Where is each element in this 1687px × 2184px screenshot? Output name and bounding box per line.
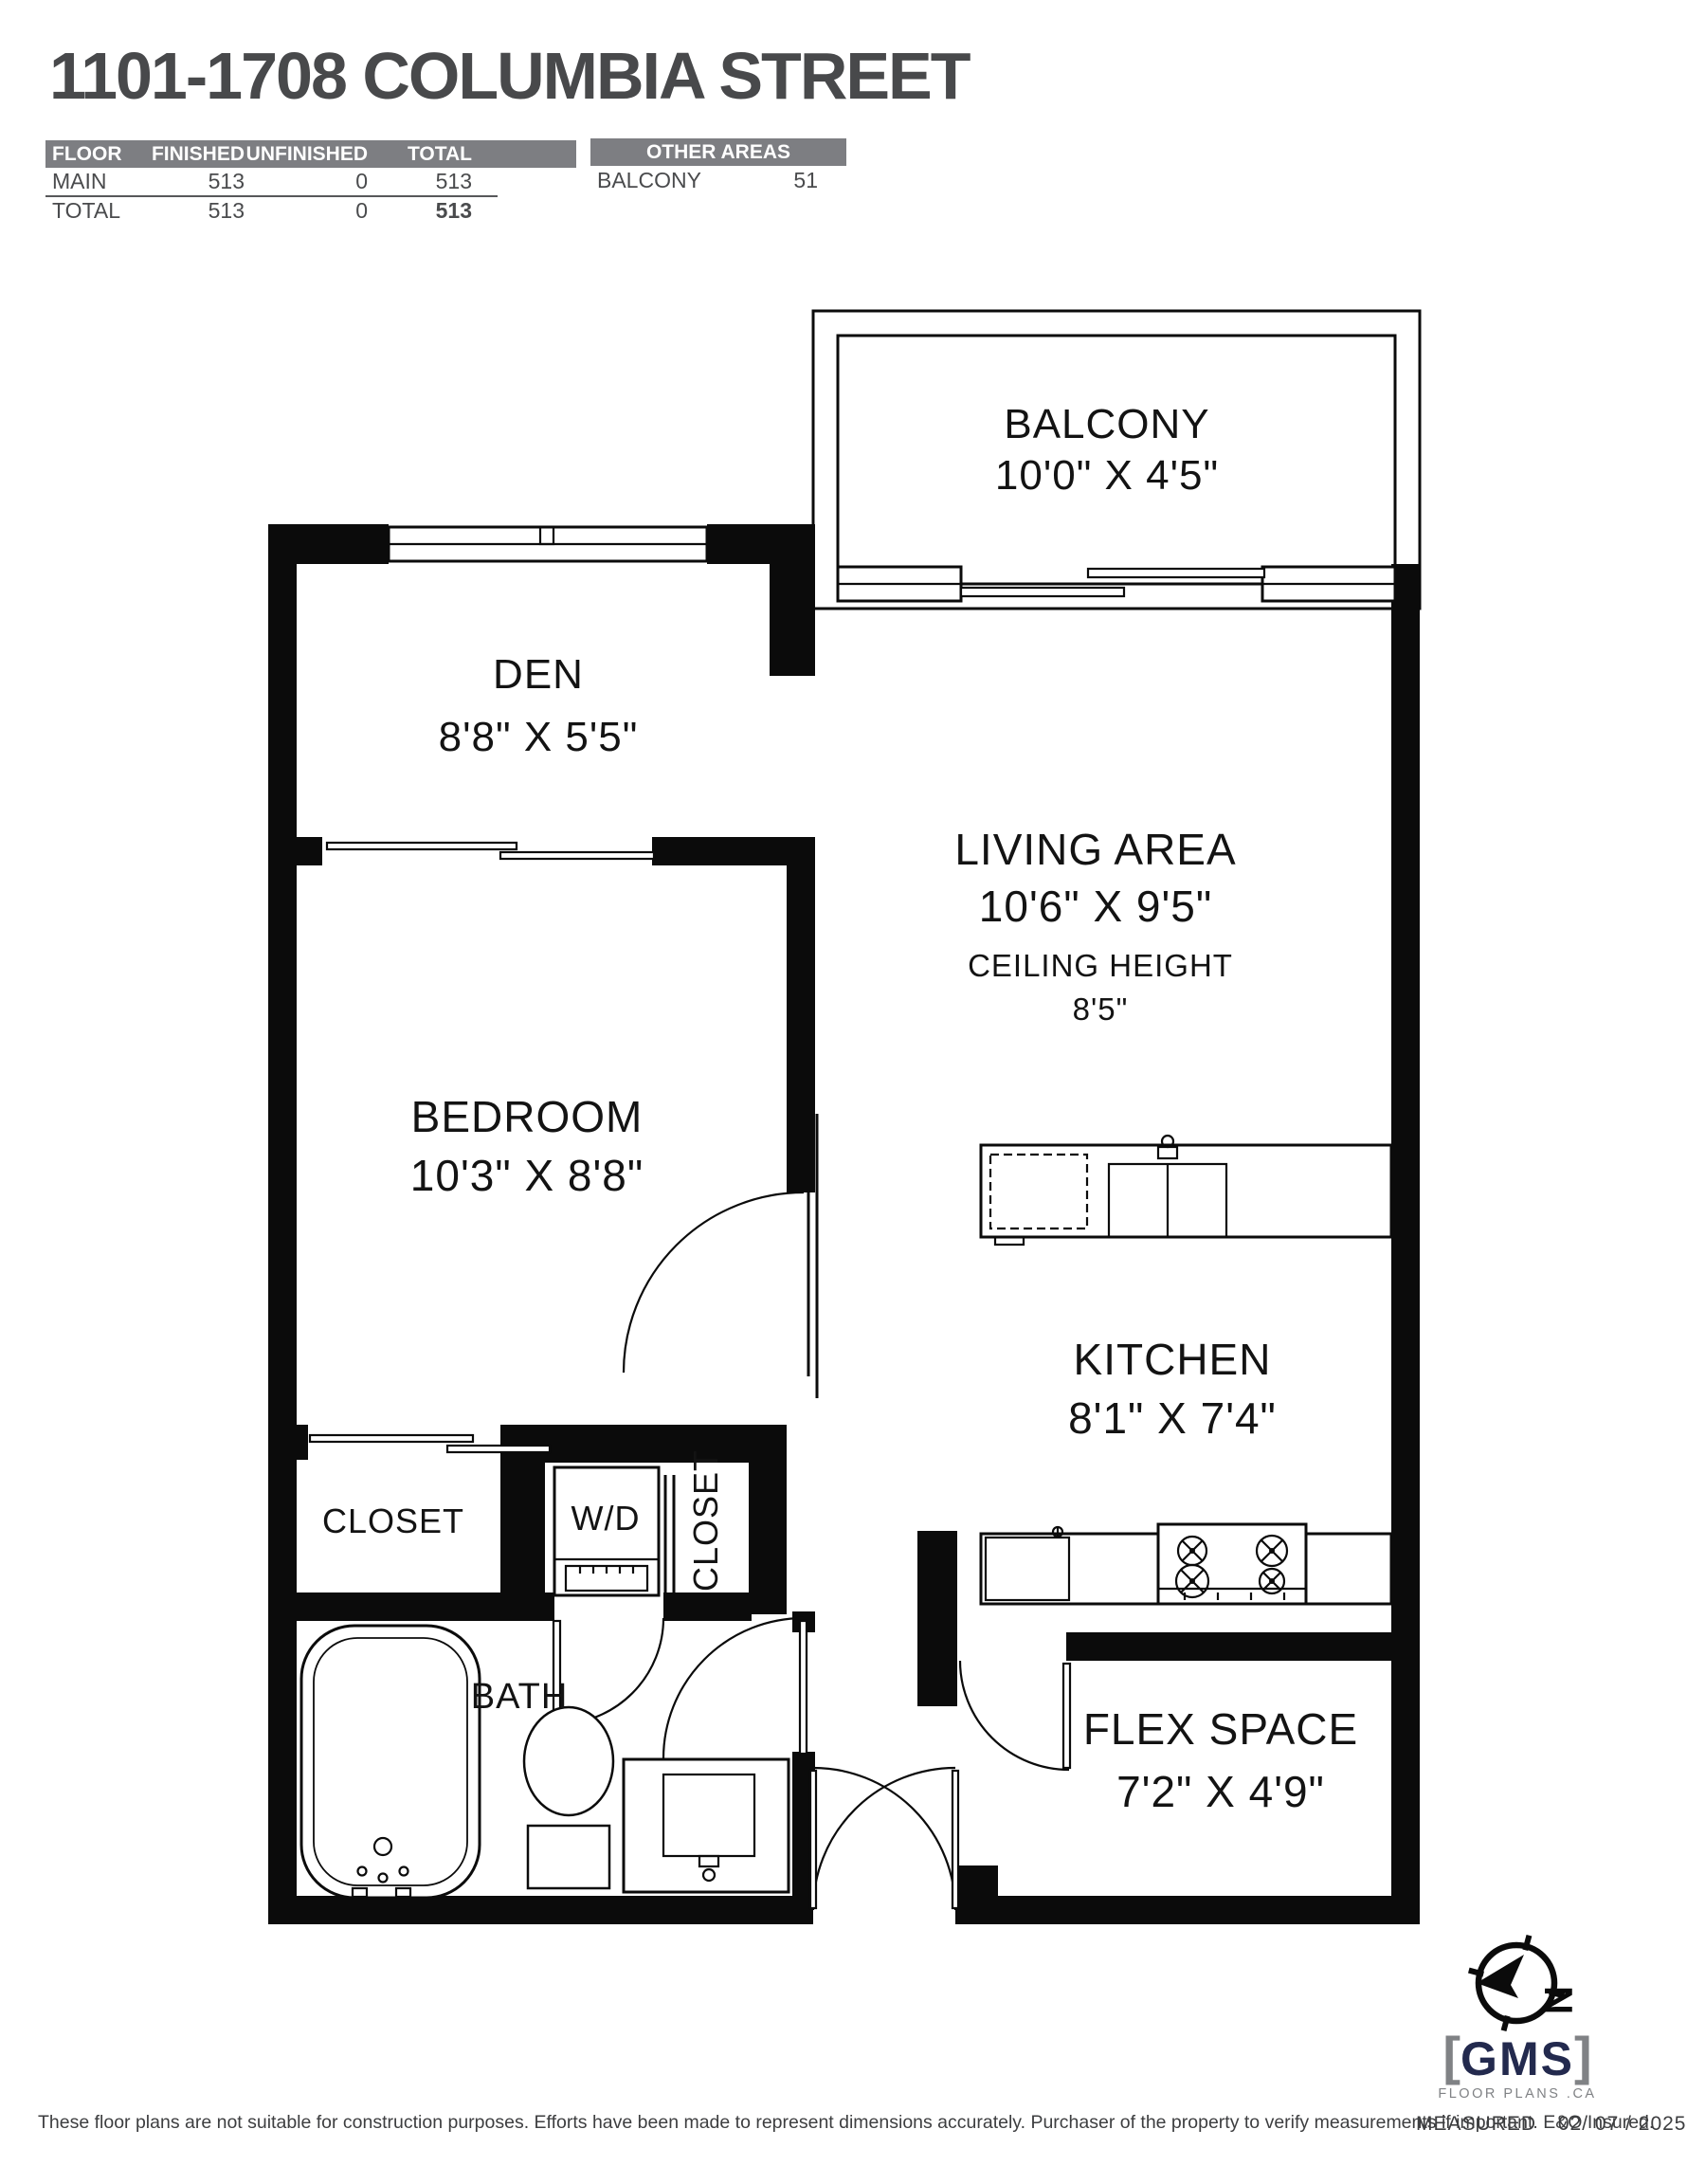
bedroom-dims: 10'3" X 8'8" — [410, 1151, 644, 1200]
bedroom-label: BEDROOM — [411, 1092, 644, 1141]
measured-date: MEASURED 02/ 07 / 2025 — [1416, 2113, 1686, 2136]
disclaimer-text: These floor plans are not suitable for c… — [38, 2112, 1654, 2134]
floor-plan-svg: BALCONY 10'0" X 4'5" DEN 8'8" X 5'5" LIV… — [0, 0, 1687, 2184]
bracket-left: [ — [1442, 2029, 1460, 2083]
gms-tagline: FLOOR PLANS .CA — [1417, 2086, 1618, 2102]
ceiling-height-value: 8'5" — [1073, 992, 1129, 1027]
flex-dims: 7'2" X 4'9" — [1116, 1767, 1325, 1816]
floor-plan-page: 1101-1708 COLUMBIA STREET FLOOR FINISHED… — [0, 0, 1687, 2184]
gms-wordmark: [ GMS ] — [1417, 2032, 1618, 2085]
ceiling-height-label: CEILING HEIGHT — [968, 948, 1233, 983]
toilet — [524, 1707, 613, 1888]
bath-label: BATH — [471, 1677, 569, 1717]
flex-label: FLEX SPACE — [1083, 1704, 1358, 1754]
measured-label: MEASURED — [1416, 2113, 1536, 2135]
wd-label: W/D — [571, 1499, 641, 1538]
kitchen-label: KITCHEN — [1074, 1335, 1272, 1384]
kitchen-dims: 8'1" X 7'4" — [1068, 1393, 1277, 1443]
measured-value: 02/ 07 / 2025 — [1558, 2113, 1687, 2135]
bathtub — [301, 1626, 480, 1898]
bracket-right: ] — [1574, 2029, 1592, 2083]
kitchen-counter — [981, 1524, 1391, 1604]
closet2-label: CLOSET — [686, 1449, 725, 1592]
sink-vanity — [624, 1759, 789, 1892]
den-label: DEN — [493, 651, 584, 698]
stove — [1158, 1524, 1306, 1604]
living-dims: 10'6" X 9'5" — [979, 882, 1212, 931]
balcony-dims: 10'0" X 4'5" — [995, 452, 1219, 499]
den-dims: 8'8" X 5'5" — [439, 714, 639, 760]
gms-logo: [ GMS ] FLOOR PLANS .CA — [1417, 1919, 1618, 2102]
balcony-label: BALCONY — [1004, 401, 1209, 447]
living-label: LIVING AREA — [954, 825, 1236, 874]
closet-label: CLOSET — [322, 1501, 464, 1540]
kitchen-island — [981, 1136, 1391, 1245]
